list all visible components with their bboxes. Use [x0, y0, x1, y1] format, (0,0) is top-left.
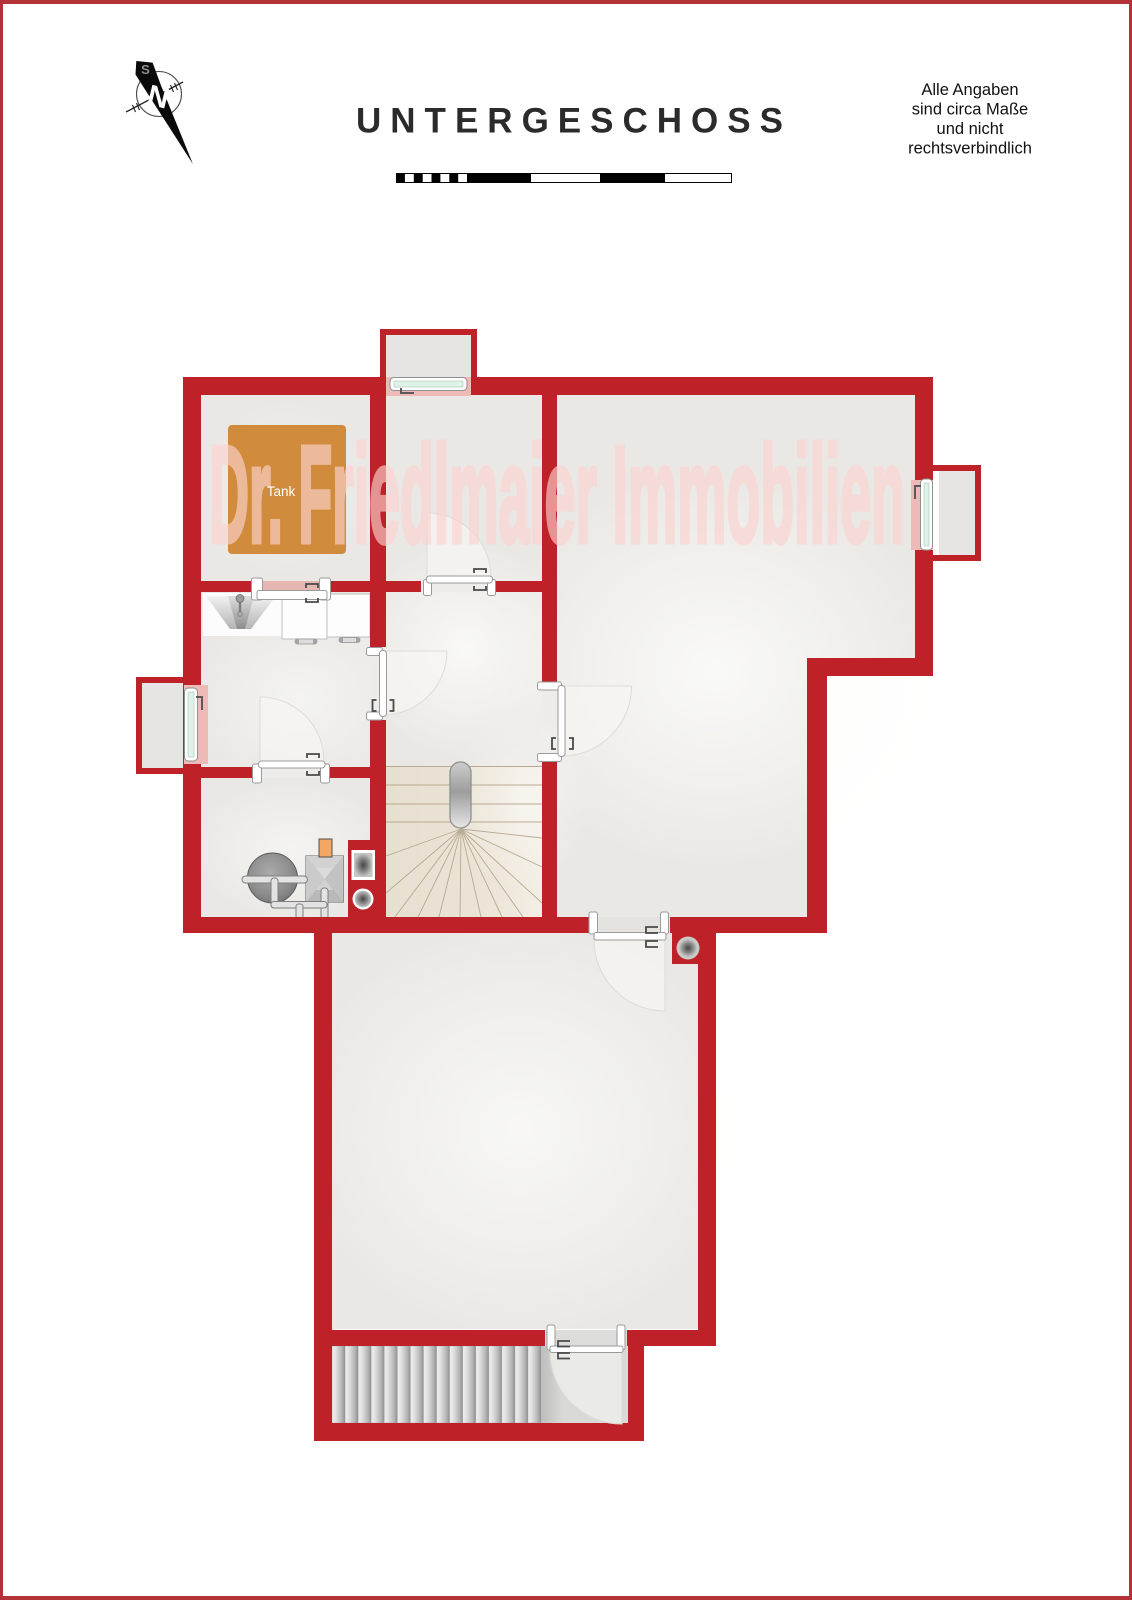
svg-text:Tank: Tank: [267, 484, 296, 499]
svg-text:Alle Angaben: Alle Angaben: [921, 81, 1018, 99]
svg-text:rechtsverbindlich: rechtsverbindlich: [908, 140, 1032, 158]
svg-text:S: S: [141, 62, 150, 77]
svg-text:Dr. Friedlmaier Immobilien: Dr. Friedlmaier Immobilien: [209, 418, 905, 572]
svg-text:sind circa Maße: sind circa Maße: [912, 101, 1028, 119]
svg-text:und nicht: und nicht: [937, 120, 1004, 138]
